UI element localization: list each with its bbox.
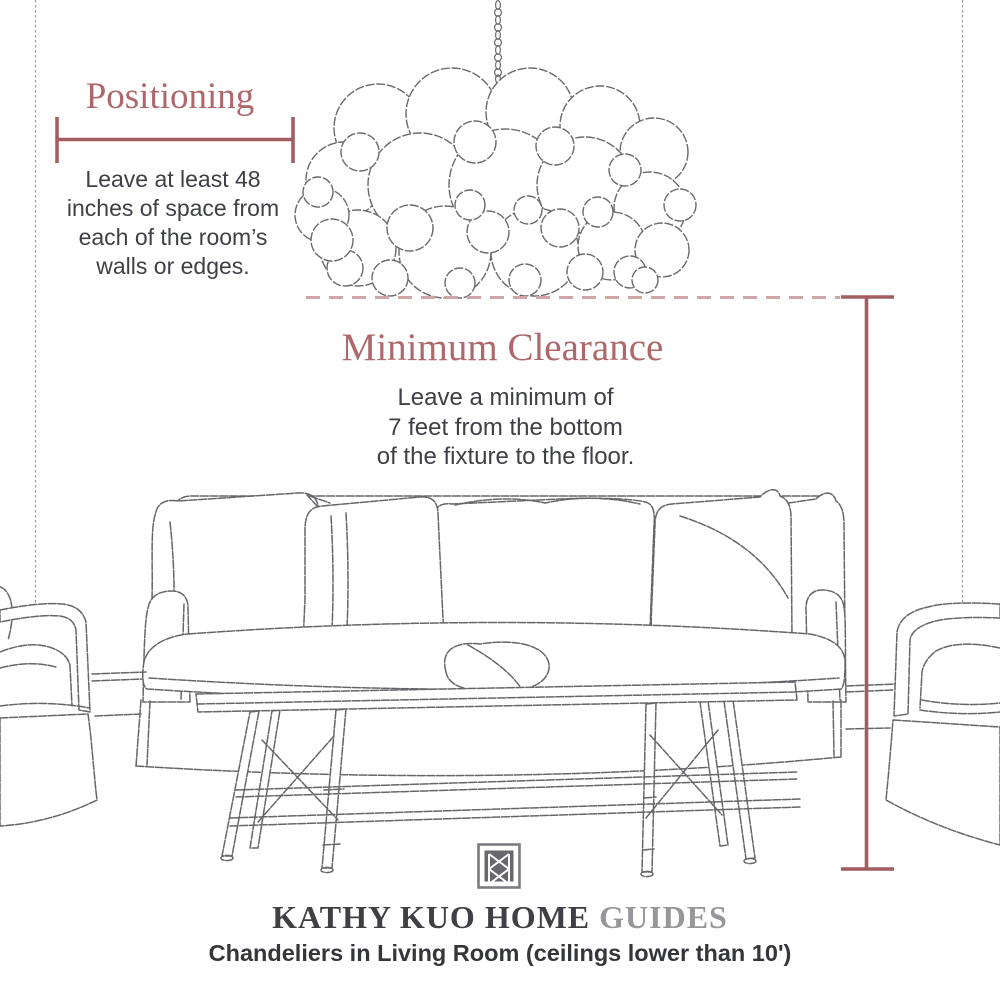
brand-suffix: GUIDES [599,899,728,935]
bubble-chandelier-icon [295,68,696,298]
armchair-right-sketch [886,603,1000,845]
lumbar-pillow [445,642,550,691]
positioning-line-4: walls or edges. [28,252,318,281]
clearance-line-2: 7 feet from the bottom [318,413,693,443]
infographic-canvas: Positioning Leave at least 48 inches of … [0,0,1000,1000]
armchair-left-sketch [0,587,97,826]
clearance-description: Leave a minimum of 7 feet from the botto… [318,383,693,472]
positioning-measure-line [57,117,293,163]
clearance-measure-line [841,297,894,869]
clearance-line-1: Leave a minimum of [318,383,693,413]
brand-logo [477,843,521,889]
brand-name: KATHY KUO HOME [272,899,590,935]
positioning-line-1: Leave at least 48 [28,165,318,194]
guide-subtitle: Chandeliers in Living Room (ceilings low… [0,940,1000,967]
brand-wordmark: KATHY KUO HOMEGUIDES [0,899,1000,936]
clearance-title: Minimum Clearance [290,328,715,369]
positioning-description: Leave at least 48 inches of space from e… [28,165,318,281]
positioning-line-2: inches of space from [28,194,318,223]
kathy-kuo-monogram-icon [477,843,521,889]
chandelier-chain-icon [495,1,502,84]
positioning-line-3: each of the room’s [28,223,318,252]
clearance-line-3: of the fixture to the floor. [318,442,693,472]
positioning-title: Positioning [40,78,300,117]
sofa-sketch [136,490,846,776]
